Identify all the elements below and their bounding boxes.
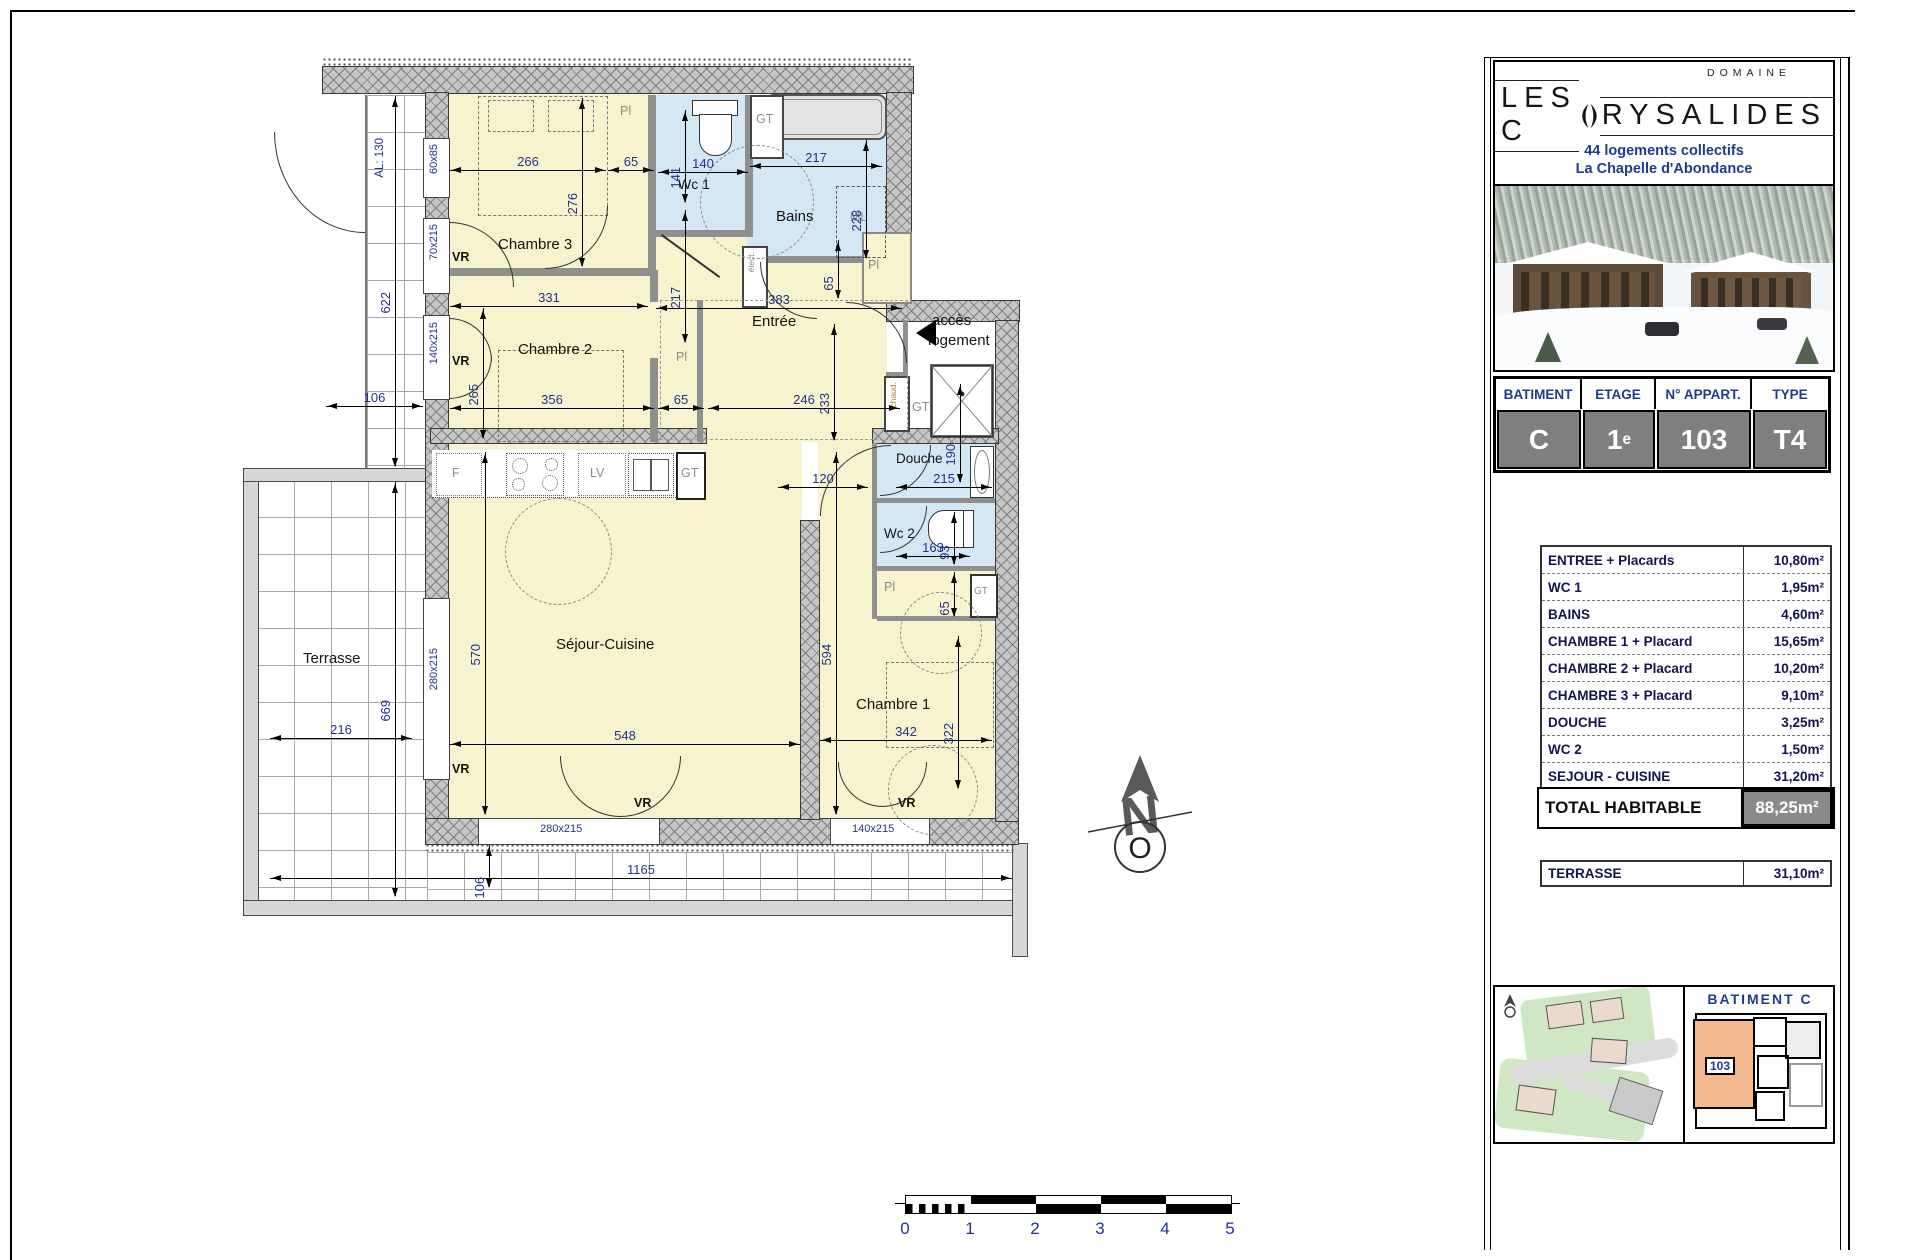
area-row: ENTREE + Placards10,80m² [1542, 547, 1830, 574]
dim: 570 [485, 452, 486, 814]
area-row: CHAMBRE 1 + Placard15,65m² [1542, 628, 1830, 655]
value-type: T4 [1753, 410, 1827, 469]
batiment-key-plan: BATIMENT C 103 [1687, 987, 1833, 1142]
window-size-label: 60x85 [428, 144, 440, 174]
dim: 93 [954, 512, 955, 564]
project-subtitle-2: La Chapelle d'Abondance [1495, 160, 1833, 178]
dim: 276 [582, 98, 583, 266]
value-appart: 103 [1657, 410, 1751, 469]
gt-label: GT [681, 466, 698, 480]
window-size-label: 70x215 [428, 224, 440, 260]
room-label-chambre2: Chambre 2 [518, 341, 592, 358]
cooktop [506, 453, 564, 496]
dim: 217 [750, 166, 882, 167]
dim: 594 [836, 452, 837, 814]
room-label-terrasse: Terrasse [303, 650, 361, 667]
dim: 217 [685, 210, 686, 342]
dim: 106 [326, 406, 423, 407]
area-row: BAINS4,60m² [1542, 601, 1830, 628]
terrace-bottom-strip [427, 852, 1012, 900]
fridge-label: F [452, 466, 460, 480]
dim: 548 [450, 744, 800, 745]
scale-tick: 2 [1030, 1219, 1039, 1239]
area-row: CHAMBRE 2 + Placard10,20m² [1542, 655, 1830, 682]
window-size-label: 140x215 [852, 823, 894, 835]
project-subtitle-1: 44 logements collectifs [1495, 142, 1833, 160]
dim: 356 [450, 408, 654, 409]
col-header-batiment: BATIMENT [1496, 379, 1582, 409]
frame-title-left-a [1484, 57, 1485, 1250]
area-row: WC 21,50m² [1542, 736, 1830, 763]
wall-top [322, 66, 914, 94]
allege-label: AL: 130 [374, 138, 386, 178]
dim: 106 [489, 845, 490, 887]
wall-ch2-entree-b [650, 358, 658, 442]
dim: 65 [838, 240, 839, 298]
dim: 246 [708, 408, 900, 409]
frame-left [10, 10, 12, 1260]
total-habitable-row: TOTAL HABITABLE 88,25m² [1537, 787, 1835, 829]
wall-wc2-bottom [877, 566, 995, 571]
floor-plan-sheet: 60x85 70x215 140x215 280x215 280x215 140… [0, 0, 1920, 1260]
terrace-parapet-stub [1012, 843, 1028, 957]
total-value: 88,25m² [1741, 789, 1833, 827]
pillow [488, 100, 534, 132]
dim: 228 [866, 140, 867, 258]
terrace-parapet-left [243, 468, 259, 916]
frame-title-top [1484, 57, 1850, 58]
vr-label: VR [634, 796, 651, 810]
terrace-door-arc [274, 132, 365, 233]
value-etage: 1e [1583, 410, 1655, 469]
dim: 233 [834, 324, 835, 440]
terrasse-row: TERRASSE 31,10m² [1540, 860, 1832, 887]
douche-basin [970, 446, 994, 498]
site-plan-thumbnail [1495, 987, 1685, 1142]
gt-label: GT [756, 112, 773, 126]
vr-label: VR [898, 796, 915, 810]
insulation-top [322, 57, 912, 66]
gt-label: GT [974, 586, 988, 597]
dim: 669 [395, 482, 396, 896]
placard-label: Pl [868, 258, 879, 272]
window-size-label: 280x215 [540, 823, 582, 835]
terrace-parapet-bottom [243, 900, 1016, 916]
area-row: CHAMBRE 3 + Placard9,10m² [1542, 682, 1830, 709]
gt-sink-label: GT [912, 400, 929, 414]
frame-title-right-a [1840, 57, 1841, 1250]
wall-wc1-left [648, 95, 656, 270]
room-label-entree: Entrée [752, 313, 796, 330]
dim: 215 [896, 487, 992, 488]
domaine-label: DOMAINE [1707, 67, 1791, 79]
wall-sejour-ch1 [800, 520, 820, 820]
vr-label: VR [452, 762, 469, 776]
dim: 383 [656, 308, 902, 309]
col-header-appart: N° APPART. [1656, 379, 1752, 409]
terrace-main [257, 480, 427, 900]
placard-label: Pl [676, 350, 687, 364]
apartment-badge: 103 [1705, 1057, 1735, 1075]
dim: 216 [270, 738, 412, 739]
dim: 190 [960, 384, 961, 482]
north-compass: N O [1085, 752, 1195, 877]
project-photo [1493, 184, 1835, 372]
col-header-type: TYPE [1752, 379, 1828, 409]
dim: 622 [395, 96, 396, 466]
room-label-chambre1: Chambre 1 [856, 696, 930, 713]
logo-text-right: RYSALIDES [1600, 97, 1833, 136]
vr-label: VR [452, 250, 469, 264]
area-row: DOUCHE3,25m² [1542, 709, 1830, 736]
dim: 1165 [270, 878, 1012, 879]
window-size-label: 140x215 [428, 322, 440, 364]
dim: 163 [896, 556, 970, 557]
scale-tick: 0 [900, 1219, 909, 1239]
window-size-label: 280x215 [428, 648, 440, 690]
key-plans: BATIMENT C 103 [1493, 985, 1835, 1144]
col-header-etage: ETAGE [1582, 379, 1656, 409]
dim: 265 [483, 308, 484, 438]
room-label-bains: Bains [776, 208, 814, 225]
dim: 65 [954, 572, 955, 616]
wall-right-lower [995, 320, 1019, 822]
dim: 120 [778, 487, 868, 488]
value-batiment: C [1497, 410, 1581, 469]
placard-label: Pl [884, 580, 895, 594]
wall-douche-wc2 [877, 498, 995, 503]
scale-bar: 0 1 2 3 4 5 [905, 1195, 1230, 1245]
dim: 322 [958, 636, 959, 788]
area-row: WC 11,95m² [1542, 574, 1830, 601]
area-row: SEJOUR - CUISINE31,20m² [1542, 763, 1830, 789]
frame-top [10, 10, 1855, 12]
dim: 342 [820, 740, 992, 741]
batiment-key-title: BATIMENT C [1687, 991, 1833, 1007]
room-label-sejour: Séjour-Cuisine [556, 636, 654, 653]
vr-label: VR [452, 354, 469, 368]
butterfly-icon [1580, 93, 1599, 139]
access-label-1: accès [932, 312, 971, 329]
compass-ouest: O [1128, 832, 1151, 865]
scale-tick: 5 [1225, 1219, 1234, 1239]
room-label-wc1: Wc 1 [678, 176, 710, 192]
dishwasher-label: LV [590, 466, 604, 480]
kitchen-sink [628, 453, 674, 496]
room-label-wc2: Wc 2 [884, 526, 915, 541]
terrasse-label: TERRASSE [1542, 866, 1743, 881]
frame-title-left-b [1490, 57, 1491, 1250]
placard-label: Pl [620, 104, 631, 118]
terrace-parapet-top [243, 468, 429, 482]
terrasse-value: 31,10m² [1743, 862, 1830, 885]
scale-tick: 1 [965, 1219, 974, 1239]
mini-north-icon [1501, 993, 1519, 1019]
apartment-info-table: BATIMENT ETAGE N° APPART. TYPE C 1e 103 … [1493, 376, 1831, 473]
access-label-2: logement [928, 332, 990, 349]
wall-ch2-entree-a [650, 270, 658, 302]
dim: 65 [608, 170, 654, 171]
total-label: TOTAL HABITABLE [1539, 798, 1741, 818]
room-label-douche: Douche [896, 451, 943, 466]
dim: 65 [658, 408, 704, 409]
room-label-chambre3: Chambre 3 [498, 236, 572, 253]
shower-tray [930, 364, 994, 438]
table-sejour [505, 498, 612, 605]
pillow [548, 100, 594, 132]
scale-tick: 3 [1095, 1219, 1104, 1239]
areas-table: ENTREE + Placards10,80m² WC 11,95m² BAIN… [1540, 545, 1832, 791]
scale-tick: 4 [1160, 1219, 1169, 1239]
project-header: DOMAINE LES C RYSALIDES 44 logements col… [1493, 60, 1835, 188]
toilet-wc1-bowl [699, 114, 732, 156]
frame-title-right-b [1848, 57, 1850, 1250]
